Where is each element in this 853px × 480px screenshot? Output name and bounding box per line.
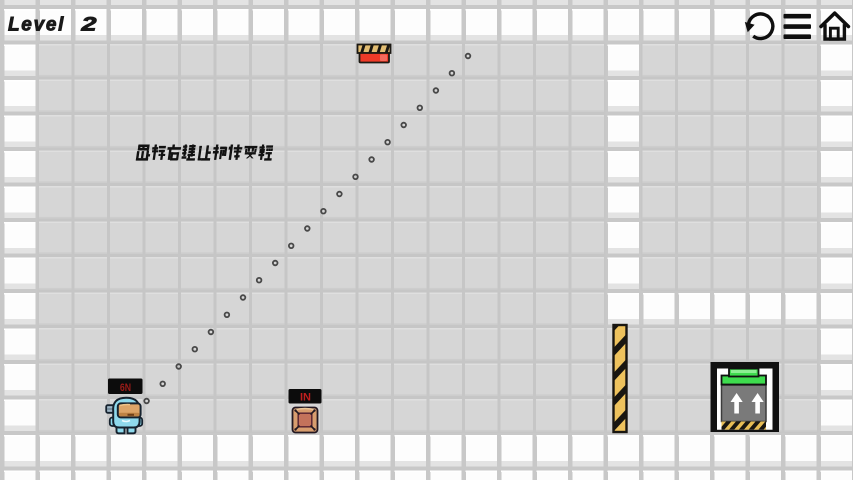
- svg-text:6N: 6N: [120, 382, 131, 394]
- svg-text:Level: Level: [8, 15, 65, 36]
- svg-text:IN: IN: [300, 392, 311, 404]
- svg-text:2: 2: [80, 15, 97, 36]
